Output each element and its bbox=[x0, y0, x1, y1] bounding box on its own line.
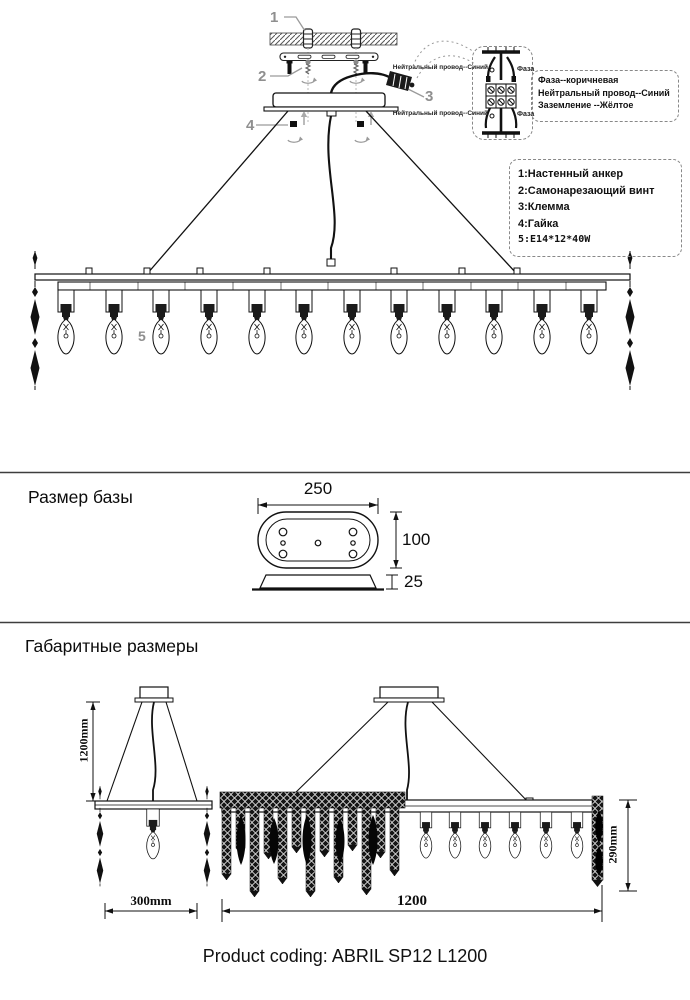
overall-front-view bbox=[220, 687, 637, 922]
side-width-dim: 300mm bbox=[116, 893, 186, 909]
terminal-plug bbox=[386, 71, 414, 91]
self-tapping-screws bbox=[302, 59, 365, 83]
wiring-reference-arcs bbox=[413, 41, 475, 78]
product-coding: Product coding: ABRIL SP12 L1200 bbox=[0, 946, 690, 967]
mounting-strip bbox=[280, 53, 378, 61]
base-thickness-dim: 25 bbox=[404, 572, 423, 592]
neutral-wire-label-bottom: Нейтральный провод--Синий bbox=[385, 110, 488, 117]
callout-1-label: 1 bbox=[270, 9, 278, 26]
ceiling-canopy bbox=[264, 93, 398, 116]
end-crystal-strand bbox=[592, 796, 603, 887]
base-width-dim: 250 bbox=[258, 479, 378, 499]
phase-wire-label-top: Фаза bbox=[517, 66, 534, 73]
legend-line-phase: Фаза--коричневая bbox=[538, 74, 672, 87]
suspension-wires bbox=[147, 111, 517, 274]
base-depth-dim: 100 bbox=[402, 530, 430, 550]
callout-3-label: 3 bbox=[425, 88, 433, 105]
body-height-dim: 290mm bbox=[606, 810, 621, 880]
ceiling-hatch bbox=[270, 33, 397, 45]
callout-5-label: 5 bbox=[138, 328, 146, 344]
chandelier-front-view bbox=[31, 251, 635, 390]
drop-height-dim: 1200mm bbox=[77, 706, 92, 776]
crystal-curtain bbox=[220, 792, 405, 897]
length-dim: 1200 bbox=[377, 893, 447, 910]
wire-color-legend: Фаза--коричневая Нейтральный провод--Син… bbox=[531, 70, 679, 122]
base-side-view bbox=[252, 575, 398, 590]
overall-side-view bbox=[86, 687, 212, 919]
part-item-screw: 2:Самонарезающий винт bbox=[518, 183, 673, 200]
overall-size-title: Габаритные размеры bbox=[25, 636, 198, 657]
parts-list: 1:Настенный анкер 2:Самонарезающий винт … bbox=[509, 159, 682, 257]
callout-2-label: 2 bbox=[258, 68, 266, 85]
part-item-terminal: 3:Клемма bbox=[518, 199, 673, 216]
part-item-bulb: 5:E14*12*40W bbox=[518, 232, 673, 249]
instruction-sheet: 1 2 3 4 5 Нейтральный провод--Синий Фаза… bbox=[0, 0, 690, 1000]
neutral-wire-label-top: Нейтральный провод--Синий bbox=[385, 64, 488, 71]
callout-4-label: 4 bbox=[246, 117, 254, 134]
legend-line-ground: Заземление --Жёлтое bbox=[538, 99, 672, 112]
part-item-anchor: 1:Настенный анкер bbox=[518, 166, 673, 183]
base-top-view bbox=[258, 498, 402, 568]
legend-line-neutral: Нейтральный провод--Синий bbox=[538, 87, 672, 100]
part-item-nut: 4:Гайка bbox=[518, 216, 673, 233]
power-cord bbox=[331, 73, 391, 93]
base-size-title: Размер базы bbox=[28, 487, 133, 508]
wiring-diagram-frame bbox=[472, 46, 533, 140]
